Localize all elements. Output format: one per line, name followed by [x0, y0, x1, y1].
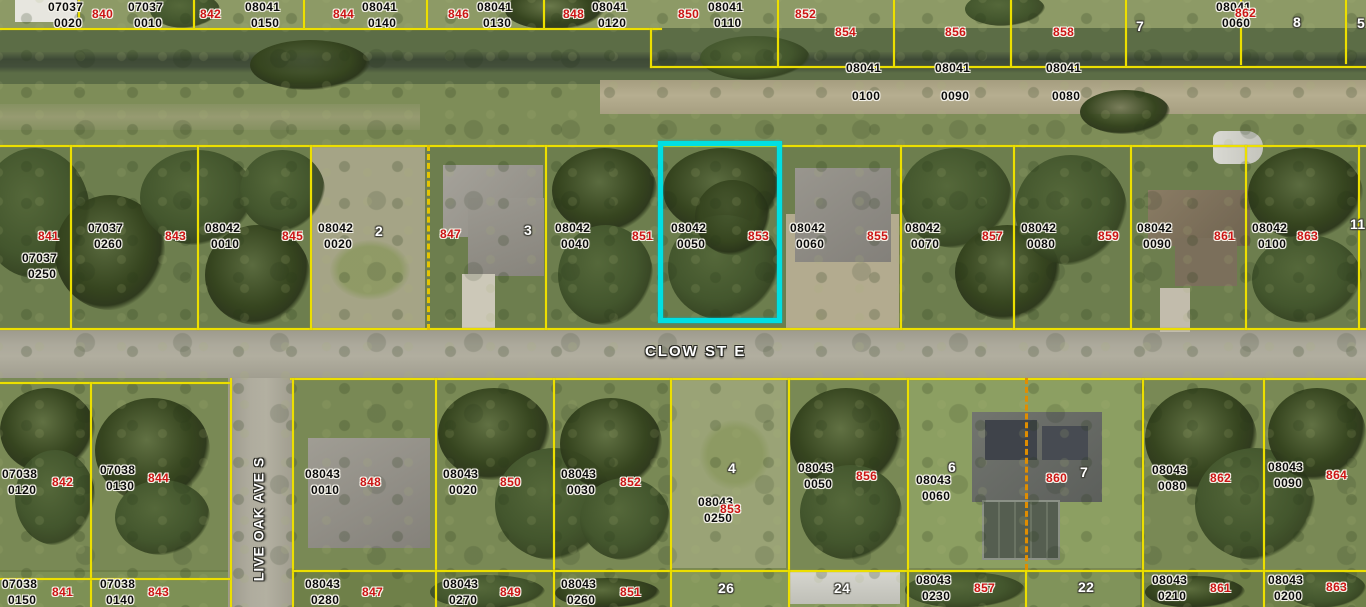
lot-number-857: 857 — [974, 582, 995, 595]
lot-number-847: 847 — [440, 228, 461, 241]
lot-number-851: 851 — [632, 230, 653, 243]
lot-number-856: 856 — [945, 26, 966, 39]
lot-number-853: 853 — [720, 503, 741, 516]
parcel-label-08043-0090: 080430090 — [1268, 461, 1303, 490]
block-number-26: 26 — [718, 582, 734, 595]
block-number-8: 8 — [1293, 16, 1301, 29]
lot-number-840: 840 — [92, 8, 113, 21]
parcel-label-08043-0280: 080430280 — [305, 578, 340, 607]
lot-number-863: 863 — [1326, 581, 1347, 594]
lot-number-864: 864 — [1326, 469, 1347, 482]
lot-number-857: 857 — [982, 230, 1003, 243]
lot-number-847: 847 — [362, 586, 383, 599]
parcel-label-08043-0010: 080430010 — [305, 468, 340, 497]
parcel-label-07037-0260: 070370260 — [88, 222, 123, 251]
parcel-label-07038-0130: 070380130 — [100, 464, 135, 493]
block-number-24: 24 — [834, 582, 850, 595]
parcel-label-08042-0050: 080420050 — [671, 222, 706, 251]
lot-number-846: 846 — [448, 8, 469, 21]
block-number-3: 3 — [524, 224, 532, 237]
parcel-label-08042-0080: 080420080 — [1021, 222, 1056, 251]
lot-number-841: 841 — [52, 586, 73, 599]
parcel-label-08042-0010: 080420010 — [205, 222, 240, 251]
lot-number-850: 850 — [678, 8, 699, 21]
parcel-label-08041-0090: 080410090 — [935, 62, 970, 103]
parcel-label-07038-0120: 070380120 — [2, 468, 37, 497]
parcel-label-08043-0200: 080430200 — [1268, 574, 1303, 603]
parcel-label-08041-0100: 080410100 — [846, 62, 881, 103]
parcel-label-08041-0140: 080410140 — [362, 1, 397, 30]
parcel-label-08041-0110: 080410110 — [708, 1, 743, 30]
aerial-parcel-map-canvas[interactable]: CLOW ST E LIVE OAK AVE S 070370020840070… — [0, 0, 1366, 607]
parcel-label-08043-0080: 080430080 — [1152, 464, 1187, 493]
block-number-4: 4 — [728, 462, 736, 475]
lot-number-850: 850 — [500, 476, 521, 489]
block-number-2: 2 — [375, 225, 383, 238]
parcel-label-08043-0030: 080430030 — [561, 468, 596, 497]
lot-number-849: 849 — [500, 586, 521, 599]
lot-number-856: 856 — [856, 470, 877, 483]
parcel-label-08041-0130: 080410130 — [477, 1, 512, 30]
parcel-label-08043-0260: 080430260 — [561, 578, 596, 607]
lot-number-851: 851 — [620, 586, 641, 599]
lot-number-863: 863 — [1297, 230, 1318, 243]
parcel-label-07037-0250: 070370250 — [22, 252, 57, 281]
lot-number-841: 841 — [38, 230, 59, 243]
parcel-label-08043-0230: 080430230 — [916, 574, 951, 603]
lot-number-848: 848 — [563, 8, 584, 21]
lot-number-854: 854 — [835, 26, 856, 39]
lot-number-858: 858 — [1053, 26, 1074, 39]
lot-number-860: 860 — [1046, 472, 1067, 485]
parcel-label-08042-0070: 080420070 — [905, 222, 940, 251]
block-number-11: 11 — [1350, 218, 1366, 231]
lot-number-861: 861 — [1214, 230, 1235, 243]
lot-number-852: 852 — [795, 8, 816, 21]
block-number-7: 7 — [1136, 20, 1144, 33]
parcel-label-08042-0100: 080420100 — [1252, 222, 1287, 251]
lot-number-862: 862 — [1210, 472, 1231, 485]
parcel-label-07037-0020: 070370020 — [48, 1, 83, 30]
lot-number-844: 844 — [333, 8, 354, 21]
parcel-label-08043-0060: 080430060 — [916, 474, 951, 503]
parcel-label-08043-0210: 080430210 — [1152, 574, 1187, 603]
lot-number-845: 845 — [282, 230, 303, 243]
parcel-label-08043-0020: 080430020 — [443, 468, 478, 497]
block-number-6: 6 — [948, 461, 956, 474]
lot-number-853: 853 — [748, 230, 769, 243]
lot-number-843: 843 — [148, 586, 169, 599]
parcel-label-08042-0040: 080420040 — [555, 222, 590, 251]
lot-number-848: 848 — [360, 476, 381, 489]
lot-number-859: 859 — [1098, 230, 1119, 243]
parcel-label-08042-0090: 080420090 — [1137, 222, 1172, 251]
lot-number-855: 855 — [867, 230, 888, 243]
parcel-label-08042-0060: 080420060 — [790, 222, 825, 251]
lot-number-843: 843 — [165, 230, 186, 243]
lot-number-844: 844 — [148, 472, 169, 485]
lot-number-862: 862 — [1235, 7, 1256, 20]
lot-number-842: 842 — [52, 476, 73, 489]
block-number-7: 7 — [1080, 466, 1088, 479]
lot-number-861: 861 — [1210, 582, 1231, 595]
parcel-label-08042-0020: 080420020 — [318, 222, 353, 251]
parcel-label-08043-0270: 080430270 — [443, 578, 478, 607]
parcel-label-08041-0150: 080410150 — [245, 1, 280, 30]
parcel-label-08043-0050: 080430050 — [798, 462, 833, 491]
parcel-label-07038-0140: 070380140 — [100, 578, 135, 607]
lot-number-852: 852 — [620, 476, 641, 489]
parcel-label-08041-0080: 080410080 — [1046, 62, 1081, 103]
parcel-label-07037-0010: 070370010 — [128, 1, 163, 30]
block-number-22: 22 — [1078, 581, 1094, 594]
lot-number-842: 842 — [200, 8, 221, 21]
block-number-5: 5 — [1357, 17, 1365, 30]
parcel-label-layer: 0703700208400703700108420804101508440804… — [0, 0, 1366, 607]
parcel-label-07038-0150: 070380150 — [2, 578, 37, 607]
parcel-label-08041-0120: 080410120 — [592, 1, 627, 30]
